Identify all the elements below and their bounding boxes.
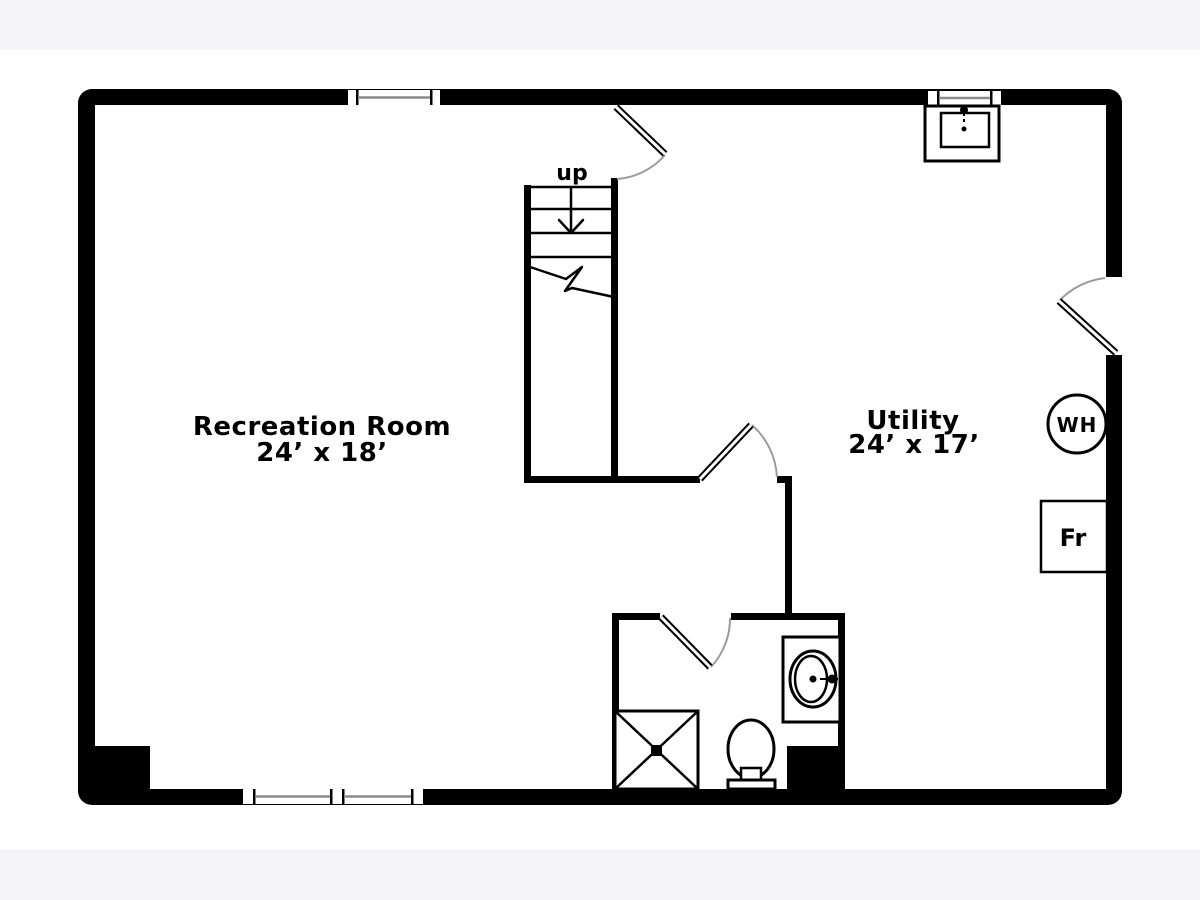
floor-plan-svg: WH Fr up Recreation Room 24’ x 18’ Utili… — [0, 0, 1200, 900]
shower-icon — [615, 711, 698, 789]
toilet-icon — [728, 720, 775, 789]
stair-bottom-wall — [524, 476, 700, 483]
faucet-icon — [960, 106, 968, 114]
faucet-icon — [828, 675, 837, 684]
stair-right-wall — [611, 178, 618, 483]
bathroom-top-wall-right — [731, 613, 845, 620]
freezer-label: Fr — [1060, 524, 1087, 552]
window-top-right — [928, 91, 1001, 105]
floor-plan-image: WH Fr up Recreation Room 24’ x 18’ Utili… — [0, 0, 1200, 900]
support-block-left — [93, 746, 150, 789]
bathroom-top-wall-left — [612, 613, 660, 620]
drain-icon — [962, 127, 967, 132]
water-heater-label: WH — [1057, 413, 1098, 437]
shower-drain-icon — [651, 745, 662, 756]
water-heater-icon: WH — [1048, 395, 1106, 453]
window-top-left — [348, 90, 440, 105]
utility-room-dimensions: 24’ x 17’ — [848, 430, 980, 460]
recreation-room-dimensions: 24’ x 18’ — [256, 438, 388, 468]
up-label: up — [556, 161, 587, 186]
drain-icon — [810, 676, 817, 683]
sink-icon — [783, 637, 840, 722]
freezer-icon: Fr — [1041, 501, 1107, 572]
laundry-tub-icon — [925, 106, 999, 161]
utility-bathroom-wall — [785, 476, 792, 620]
stair-left-wall — [524, 185, 531, 483]
window-bottom-double — [243, 789, 423, 804]
support-block-bathroom — [787, 746, 843, 789]
